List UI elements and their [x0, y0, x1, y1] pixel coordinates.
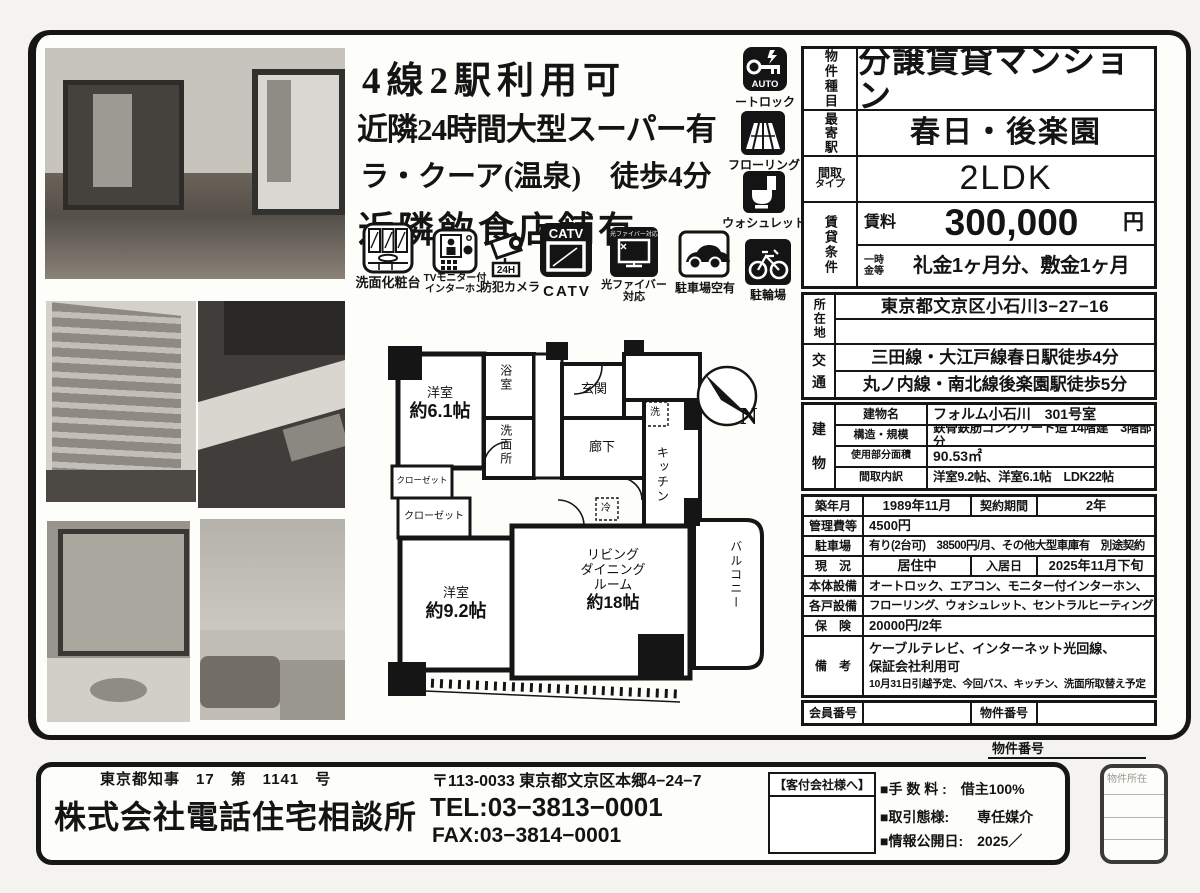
access-label: 交 通 — [804, 345, 834, 397]
deposit-value: 礼金1ヶ月分、敷金1ヶ月 — [888, 256, 1154, 277]
living-line1: リビング — [546, 548, 680, 563]
company-address: 〒113-0033 東京都文京区本郷4−24−7 — [432, 767, 701, 791]
station-label: 最寄駅 — [804, 111, 856, 155]
closet1-label: クローゼット — [394, 476, 450, 486]
published-line: ■情報公開日: 2025／ — [880, 831, 1022, 851]
fee-line: ■手 数 料 : 借主100% — [880, 779, 1025, 799]
fiber-label-line2: 対応 — [596, 291, 672, 303]
camera-label: 防犯カメラ — [474, 281, 546, 294]
building-name-label: 建物名 — [836, 405, 926, 424]
catv-icon: CATV — [539, 222, 593, 278]
room-6-1-name: 洋室 — [398, 386, 482, 401]
washroom-label: 洗面所 — [498, 424, 512, 466]
built-label: 築年月 — [804, 497, 862, 515]
deposit-label-line1: 一時 — [864, 255, 884, 267]
spec-table-address: 所在地 東京都文京区小石川3−27−16 交 通 三田線・大江戸線春日駅徒歩4分… — [801, 292, 1157, 400]
entrance-label: 玄関 — [566, 382, 622, 397]
bicycle-icon — [744, 238, 792, 286]
parking-car-icon — [678, 230, 730, 278]
layout-label: 間取 タイプ — [804, 157, 856, 201]
security-camera-icon: 24H — [485, 226, 533, 280]
access-value-1: 三田線・大江戸線春日駅徒歩4分 — [836, 345, 1154, 370]
address-value: 東京都文京区小石川3−27−16 — [836, 295, 1154, 318]
movein-value: 2025年11月下旬 — [1038, 557, 1154, 575]
station-value: 春日・後楽園 — [858, 111, 1154, 155]
building-name-value: フォルム小石川 301号室 — [928, 405, 1154, 424]
hallway-label: 廊下 — [580, 440, 624, 455]
agent-note-title: 【客付会社様へ】 — [770, 774, 874, 797]
fiber-label: 光ファイバー 対応 — [596, 279, 672, 303]
catv-label: CATV — [541, 284, 593, 301]
deposit-label-line2: 金等 — [864, 266, 884, 278]
living-size: 約18帖 — [546, 593, 680, 613]
mgmt-value: 4500円 — [864, 517, 1154, 535]
term-label: 契約期間 — [972, 497, 1036, 515]
photo-living-room — [45, 48, 345, 279]
camera-24h-badge: 24H — [497, 265, 515, 276]
spec-table-ids: 会員番号 物件番号 — [801, 700, 1157, 726]
living-line2: ダイニング — [546, 563, 680, 578]
parking-row-label: 駐車場 — [804, 537, 862, 555]
access-label-char2: 通 — [812, 375, 826, 390]
property-location-box: 物件所在 — [1100, 764, 1168, 864]
equip1-value: オートロック、エアコン、モニター付インターホン、 — [864, 577, 1154, 595]
living-dining-label: リビング ダイニング ルーム 約18帖 — [546, 548, 680, 612]
member-no-value — [864, 703, 970, 723]
notes-label: 備 考 — [804, 637, 862, 695]
access-value-2: 丸ノ内線・南北線後楽園駅徒歩5分 — [836, 372, 1154, 397]
equip2-value: フローリング、ウォシュレット、セントラルヒーティング — [864, 597, 1154, 615]
vanity-icon — [362, 222, 414, 274]
building-label-char1: 建 — [812, 422, 826, 437]
layout-label-line2: タイプ — [815, 180, 845, 191]
room-6-1-label: 洋室 約6.1帖 — [398, 386, 482, 422]
deposit-label: 一時 金等 — [864, 255, 884, 278]
area-value: 90.53㎡ — [928, 447, 1154, 466]
floor-plan: 洋室 約6.1帖 浴室 玄関 洗面所 廊下 キッチン クローゼット クローゼット… — [388, 340, 803, 708]
status-value: 居住中 — [864, 557, 970, 575]
insurance-value: 20000円/2年 — [864, 617, 1154, 635]
spec-table-building: 建 物 建物名 フォルム小石川 301号室 構造・規模 鉄骨鉄筋コンクリート造 … — [801, 402, 1157, 491]
property-no-value — [1038, 703, 1154, 723]
notes-line3: 10月31日引越予定、今回バス、キッチン、洗面所取替え予定 — [869, 679, 1146, 690]
room-9-2-label: 洋室 約9.2帖 — [408, 586, 504, 622]
member-no-label: 会員番号 — [804, 703, 862, 723]
layout-detail-value: 洋室9.2帖、洋室6.1帖 LDK22帖 — [928, 468, 1154, 488]
access-label-char1: 交 — [812, 353, 826, 368]
building-label-char2: 物 — [812, 456, 826, 471]
notes-line1: ケーブルテレビ、インターネット光回線、 — [869, 642, 1115, 656]
equip2-label: 各戸設備 — [804, 597, 862, 615]
flooring-icon — [740, 110, 786, 156]
address-value-row2 — [836, 320, 1154, 343]
catv-icon-text: CATV — [549, 226, 584, 241]
photo-kitchen — [198, 301, 345, 508]
mgmt-label: 管理費等 — [804, 517, 862, 535]
headline-lines-stations: 4線2駅利用可 — [362, 50, 626, 104]
status-label: 現 況 — [804, 557, 862, 575]
notes-value: ケーブルテレビ、インターネット光回線、 保証会社利用可 10月31日引越予定、今… — [864, 637, 1154, 695]
room-6-1-size: 約6.1帖 — [398, 401, 482, 422]
autolock-icon: AUTO — [742, 46, 788, 92]
compass-north-label: N — [740, 404, 757, 432]
rent-section-label: 賃貸条件 — [804, 203, 856, 286]
rent-unit: 円 — [1123, 212, 1144, 234]
room-9-2-name: 洋室 — [408, 586, 504, 601]
headline-laqua: ラ・クーア(温泉) 徒歩4分 — [360, 153, 712, 195]
bath-label: 浴室 — [498, 364, 512, 392]
fridge-mark: 冷 — [601, 503, 611, 515]
movein-label: 入居日 — [972, 557, 1036, 575]
property-type-value: 分譲賃貸マンション — [858, 49, 1154, 109]
headline-supermarket: 近隣24時間大型スーパー有 — [357, 104, 716, 149]
photo-bathroom — [200, 519, 345, 720]
license-number: 東京都知事 17 第 1141 号 — [100, 768, 331, 789]
structure-label: 構造・規模 — [836, 426, 926, 445]
footer-property-no-label: 物件番号 — [992, 738, 1044, 757]
company-name: 株式会社電話住宅相談所 — [54, 792, 417, 838]
area-label: 使用部分面積 — [836, 447, 926, 466]
agent-note-box: 【客付会社様へ】 — [768, 772, 876, 854]
spec-table-top: 物件種目 分譲賃貸マンション 最寄駅 春日・後楽園 間取 タイプ 2LDK 賃貸… — [801, 46, 1157, 289]
layout-detail-label: 間取内訳 — [836, 468, 926, 488]
fiber-optic-icon: 光ファイバー対応 — [609, 226, 659, 278]
layout-value: 2LDK — [858, 157, 1154, 201]
notes-line2: 保証会社利用可 — [869, 660, 960, 674]
property-type-label: 物件種目 — [804, 49, 856, 109]
room-9-2-size: 約9.2帖 — [408, 601, 504, 622]
company-fax: FAX:03−3814−0001 — [432, 824, 621, 848]
photo-vanity — [47, 521, 190, 722]
spec-table-details: 築年月 1989年11月 契約期間 2年 管理費等 4500円 駐車場 有り(2… — [801, 494, 1157, 698]
deal-type-line: ■取引態様: 専任媒介 — [880, 807, 1033, 827]
fiber-label-line1: 光ファイバー — [596, 279, 672, 291]
bicycle-label: 駐輪場 — [736, 289, 800, 302]
living-line3: ルーム — [546, 578, 680, 593]
structure-value: 鉄骨鉄筋コンクリート造 14階建 3階部分 — [928, 426, 1154, 445]
built-value: 1989年11月 — [864, 497, 970, 515]
insurance-label: 保 険 — [804, 617, 862, 635]
washlet-icon — [742, 170, 786, 214]
property-location-label: 物件所在 — [1104, 768, 1164, 785]
address-label: 所在地 — [804, 295, 834, 343]
rent-row: 賃料 300,000 円 — [858, 203, 1154, 244]
rent-value: 300,000 — [900, 204, 1123, 243]
term-value: 2年 — [1038, 497, 1154, 515]
balcony-label: バルコニー — [728, 540, 742, 610]
deposit-row: 一時 金等 礼金1ヶ月分、敷金1ヶ月 — [858, 246, 1154, 286]
building-label: 建 物 — [804, 405, 834, 488]
washlet-label: ウォシュレット — [722, 217, 806, 230]
kitchen-label: キッチン — [654, 446, 668, 504]
photo-building-exterior — [46, 301, 196, 502]
equip1-label: 本体設備 — [804, 577, 862, 595]
intercom-icon — [432, 228, 478, 274]
parking-row-value: 有り(2台可) 38500円/月、その他大型車庫有 別途契約 — [864, 537, 1154, 555]
parking-label: 駐車場空有 — [668, 282, 742, 295]
closet2-label: クローゼット — [400, 511, 468, 523]
washer-mark: 洗 — [650, 407, 660, 419]
company-tel: TEL:03−3813−0001 — [430, 792, 663, 823]
fiber-icon-text: 光ファイバー対応 — [610, 230, 658, 238]
rent-label: 賃料 — [864, 215, 896, 232]
autolock-icon-text: AUTO — [752, 79, 779, 90]
property-no-label: 物件番号 — [972, 703, 1036, 723]
autolock-label: ートロック — [726, 96, 804, 109]
